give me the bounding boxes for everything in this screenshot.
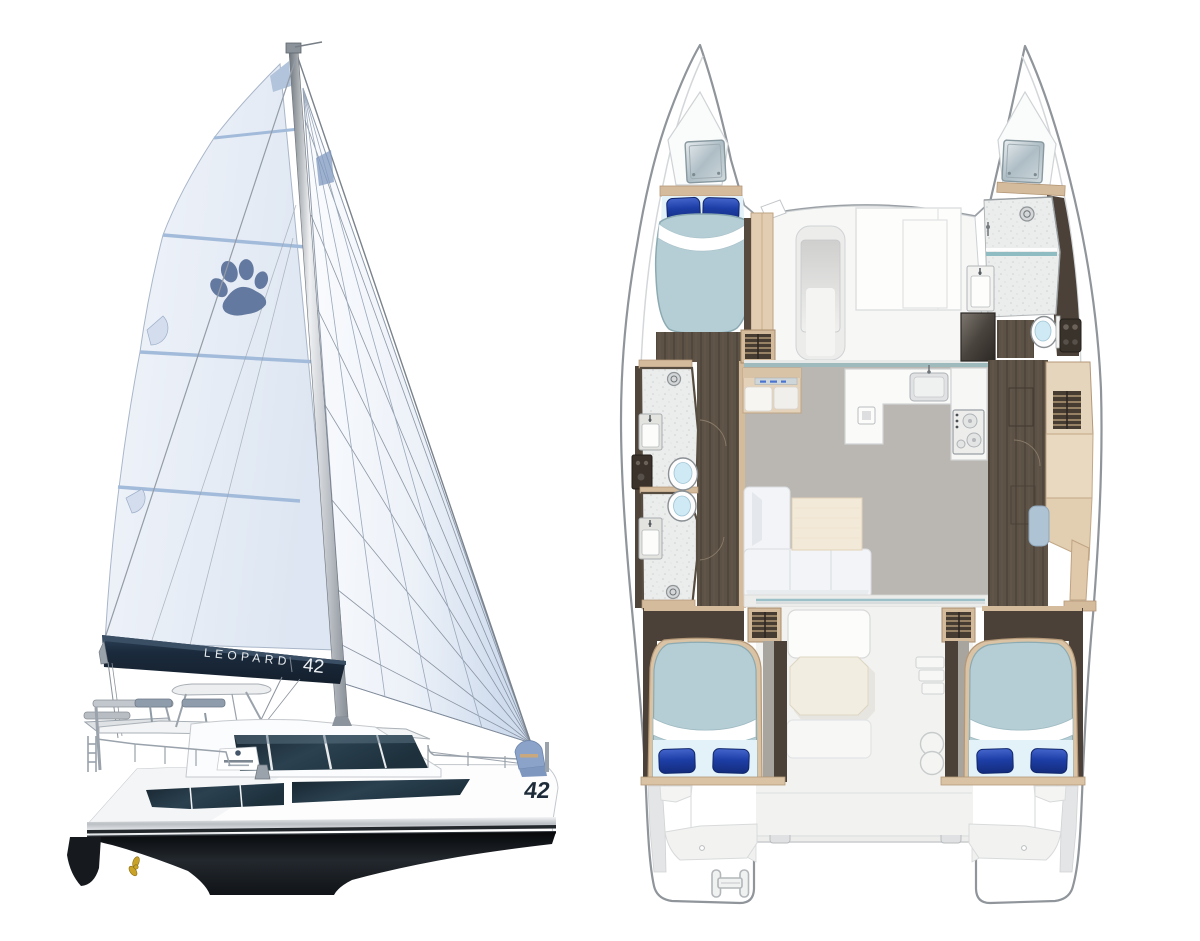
svg-text:42: 42	[302, 655, 325, 678]
svg-text:42: 42	[523, 777, 552, 803]
